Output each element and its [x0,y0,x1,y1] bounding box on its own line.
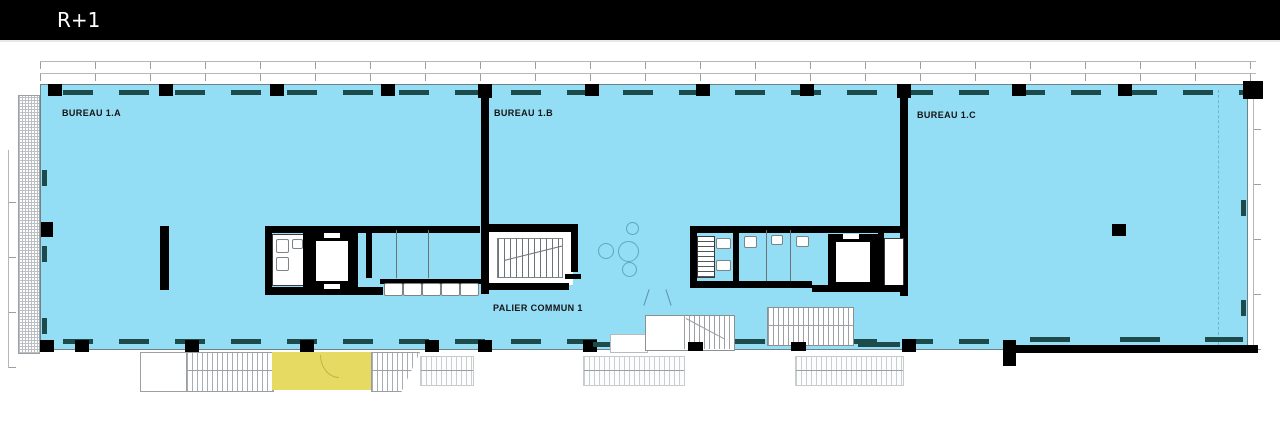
column [1112,224,1126,236]
core-right-lower-wall [812,285,905,292]
column [478,340,492,352]
floor-plate [40,84,1248,350]
core-left-side-wall [265,226,272,290]
room-label-bureau-c: BUREAU 1.C [917,110,976,120]
table-circle [622,262,637,277]
cabinet [460,283,479,296]
column [425,340,439,352]
mullion-bar [1241,200,1246,216]
stall-partition [428,230,429,278]
core-right-top-wall [690,226,905,233]
stall-partition [766,230,767,284]
room-label-palier: PALIER COMMUN 1 [493,303,583,313]
highlighted-entrance-area [272,352,371,390]
dimension-line-left [8,150,16,368]
core-right-side-wall [690,226,697,288]
sink-fixture [771,235,783,245]
toilet-fixture [716,238,731,249]
door-swing [320,355,339,378]
mullion-bar [42,318,47,334]
cabinet [403,283,422,296]
column [159,84,173,96]
dimension-line-top-outer [40,61,1256,69]
mullion-bar [42,246,47,262]
cabinet [384,283,403,296]
exterior-landing [140,352,188,392]
floor-level-title: R+1 [57,9,100,31]
cabinet [422,283,441,296]
exterior-stair-west [186,352,274,392]
column [185,340,199,352]
elevator-cab-left [316,241,348,281]
core-partition [733,228,739,286]
elevator-door [324,284,340,289]
corner-column [1243,81,1263,99]
table-circle [618,241,639,262]
toilet-fixture [276,257,289,271]
wall-head [897,84,911,98]
elevator-door [324,233,340,238]
toilet-fixture [744,236,757,248]
screenshot-root: R+1 [0,0,1280,429]
column [585,84,599,96]
service-room [884,238,904,286]
exterior-stair-east [371,352,420,392]
column [270,84,284,96]
dimension-line-right [1253,90,1261,350]
sink-fixture [292,239,303,249]
core-left-top-wall [265,226,480,233]
exterior-grating [795,356,904,386]
column [791,342,806,351]
bottom-right-wall [1008,345,1258,353]
stall-partition [396,230,397,278]
column [688,342,703,351]
mullion-bar [42,170,47,186]
wall-stub [160,226,169,290]
table-circle [626,222,639,235]
column [41,222,53,237]
table-circle [598,243,614,259]
stair-door-jamb [565,274,581,279]
column [902,339,916,352]
exterior-grating [420,356,474,386]
stair-bottom-wall [489,283,569,290]
column [800,84,814,96]
toilet-fixture [716,260,731,271]
mullion-bar [1120,337,1160,342]
floor-recess [610,334,648,353]
column [1012,84,1026,96]
column [300,340,314,352]
elevator-cab-right [836,242,870,282]
mullion-bar [858,342,900,347]
expansion-joint-dashed-line [1218,90,1219,345]
title-bar: R+1 [0,0,1280,42]
column [696,84,710,96]
column [48,84,62,96]
core-partition [366,228,372,278]
duct-louver [697,236,715,278]
room-label-bureau-a: BUREAU 1.A [62,108,121,118]
demising-wall-ab [481,84,489,294]
toilet-fixture [276,239,289,253]
column [75,340,89,352]
sink-fixture [796,236,809,247]
exterior-grating [583,356,685,386]
dimension-line-top-inner [40,73,1256,81]
stair-landing-line [768,325,853,326]
column [1118,84,1132,96]
mullion-bar [1030,337,1070,342]
mullion-bar [1241,300,1246,316]
column [381,84,395,96]
stair-right-wall [571,230,578,272]
stall-partition [790,230,791,282]
stair-top-wall [489,224,578,232]
stair-treads [497,238,563,278]
mullion-bar [1205,337,1243,342]
core-partition [353,226,358,292]
cabinet [441,283,460,296]
room-label-bureau-b: BUREAU 1.B [494,108,553,118]
column [40,340,54,352]
wall-head [478,84,492,98]
column [1003,340,1016,366]
core-right-bottom-wall [690,281,812,288]
interior-stair-2 [767,307,854,346]
left-facade-hatch-band [18,95,40,354]
top-facade-mullions [41,90,1245,95]
elevator-door [843,234,859,239]
